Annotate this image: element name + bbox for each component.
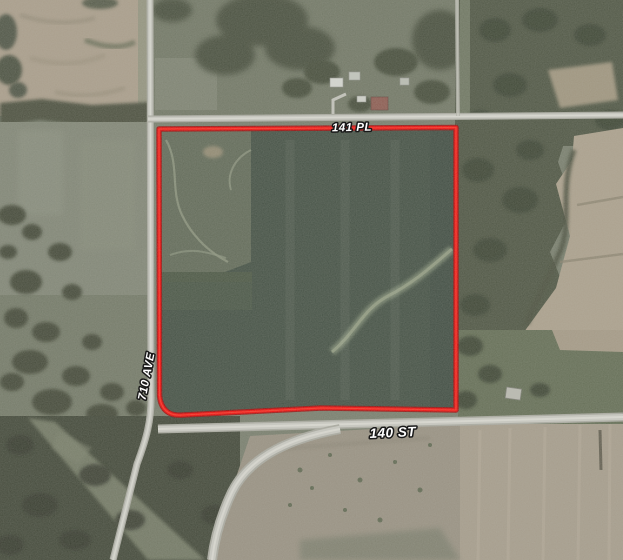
road-label-141-pl: 141 PL [332, 122, 372, 135]
map-canvas: 141 PL 710 AVE 140 ST [0, 0, 623, 560]
grain-overlay [0, 0, 623, 560]
road-label-140-st: 140 ST [369, 424, 417, 441]
aerial-map[interactable]: 141 PL 710 AVE 140 ST [0, 0, 623, 560]
